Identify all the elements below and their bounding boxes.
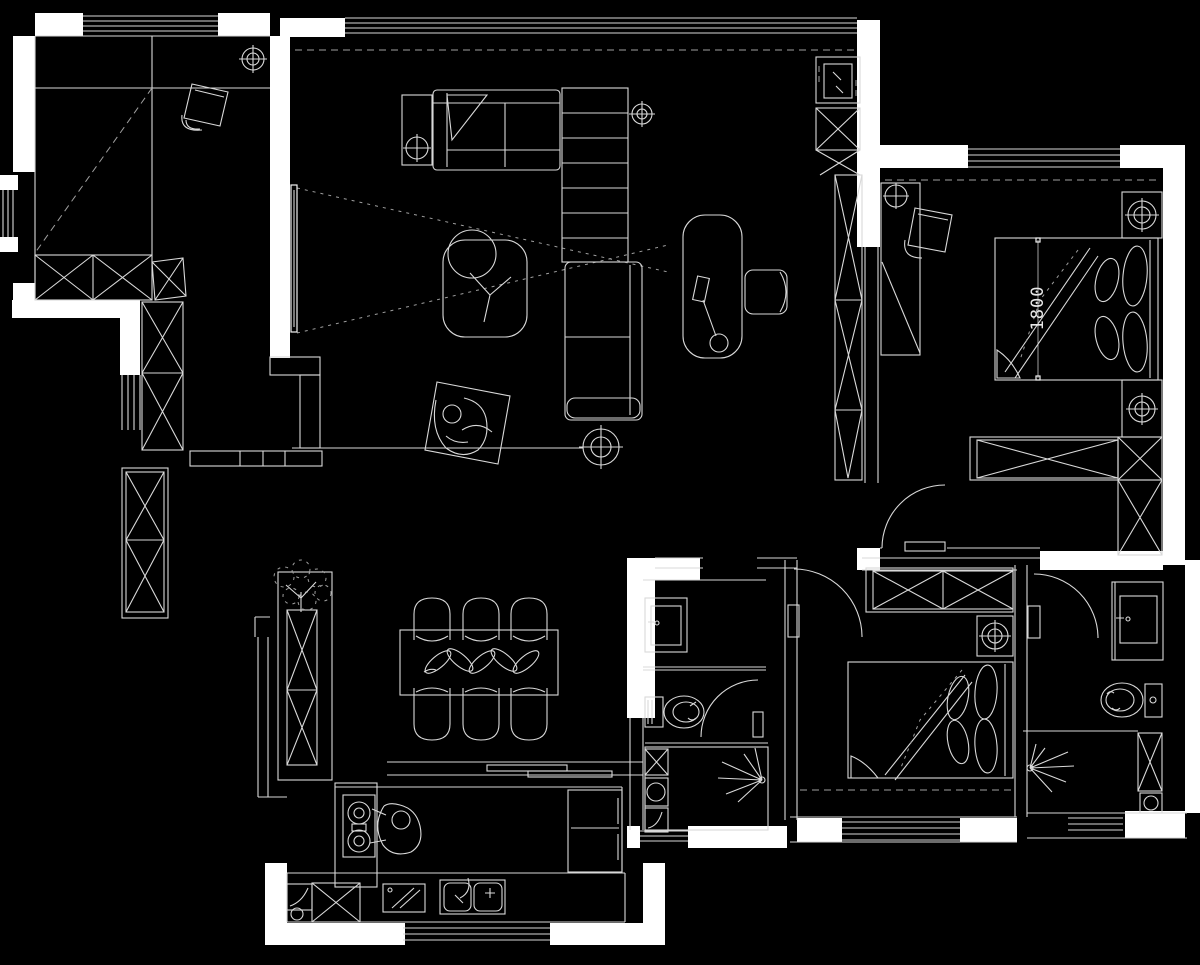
cutting-board bbox=[383, 884, 425, 912]
partition-walls bbox=[35, 36, 1187, 842]
dining-chairs-top bbox=[414, 598, 547, 641]
bathroom-storage-column bbox=[645, 749, 668, 832]
ensuite-toilet bbox=[1101, 683, 1162, 717]
bedroom2-furniture bbox=[848, 616, 1013, 780]
window-ensuite-bottom bbox=[1068, 818, 1123, 830]
kitchen-left-counter bbox=[335, 783, 377, 887]
dining-chairs-bottom bbox=[414, 688, 547, 740]
tv-sightline-upper bbox=[297, 188, 668, 272]
window-bedroom2-bottom bbox=[842, 822, 960, 840]
kitchen-base-cabinet-x bbox=[312, 883, 360, 922]
window-study-top bbox=[83, 16, 218, 31]
ensuite-bathroom bbox=[1027, 582, 1163, 792]
tv-sightline-lower bbox=[297, 245, 668, 333]
floor-plan-screenshot: 1800 bbox=[0, 0, 1200, 965]
hall-cabinet-upper bbox=[142, 302, 183, 450]
doors bbox=[487, 485, 1098, 777]
window-hall-left bbox=[122, 375, 140, 430]
hall-cabinet-lower bbox=[122, 468, 168, 618]
corner-lamp bbox=[629, 101, 655, 127]
window-study-left bbox=[3, 190, 13, 237]
window-living-top bbox=[345, 18, 857, 33]
master-nightstand-bottom bbox=[1122, 380, 1162, 437]
master-wardrobe bbox=[970, 437, 1162, 555]
walls-white bbox=[0, 13, 1200, 945]
dining-tall-cabinet bbox=[278, 572, 332, 780]
gas-stove bbox=[343, 795, 375, 857]
master-bed: 1800 bbox=[995, 238, 1158, 380]
master-nightstand-top bbox=[1122, 192, 1162, 238]
master-desk bbox=[881, 183, 920, 355]
bedroom2-nightstand bbox=[977, 616, 1013, 656]
bathroom bbox=[645, 598, 765, 802]
master-bedroom-furniture: 1800 bbox=[881, 183, 1162, 437]
window-kitchen-bottom bbox=[403, 928, 550, 940]
door-master-bedroom bbox=[882, 485, 945, 551]
person-figure-living bbox=[425, 382, 510, 464]
chaise-lounge bbox=[565, 262, 642, 420]
door-ensuite bbox=[1028, 574, 1098, 638]
living-room-furniture bbox=[291, 88, 787, 469]
study-cabinet-row bbox=[35, 255, 186, 300]
cabinets bbox=[35, 57, 1162, 922]
sofa-main bbox=[433, 90, 560, 170]
study-chair bbox=[182, 84, 228, 130]
table-centerpiece-leaves bbox=[422, 645, 542, 677]
floor-lamp bbox=[579, 425, 623, 469]
door-bedroom2 bbox=[788, 569, 862, 637]
person-figure-kitchen bbox=[370, 804, 421, 854]
door-bathroom-wc bbox=[701, 680, 763, 737]
refrigerator bbox=[568, 790, 622, 872]
bedroom2-bed bbox=[848, 662, 1013, 780]
sofa-side-table bbox=[402, 95, 432, 165]
desk-oval bbox=[683, 215, 742, 358]
entry-cabinet-appliance bbox=[816, 57, 860, 103]
desk-lamp bbox=[693, 276, 728, 352]
bed-width-label: 1800 bbox=[1028, 286, 1048, 331]
washbasin-vanity bbox=[645, 598, 687, 652]
window-master-top bbox=[968, 149, 1120, 167]
desk-chair bbox=[745, 270, 787, 314]
bedroom2-wardrobe bbox=[866, 568, 1013, 612]
entry-cabinet-x bbox=[816, 108, 860, 175]
lounge-chair bbox=[443, 230, 527, 337]
ensuite-shower-spray bbox=[1027, 744, 1074, 792]
study-ceiling-lamp bbox=[239, 45, 267, 73]
shower-spray bbox=[718, 748, 765, 802]
kitchen-corner-unit bbox=[287, 884, 312, 920]
plant-bonsai bbox=[274, 560, 331, 612]
ensuite-storage-column bbox=[1138, 733, 1162, 813]
double-sink bbox=[440, 878, 505, 914]
ensuite-washbasin bbox=[1112, 582, 1163, 660]
floor-plan-canvas: 1800 bbox=[0, 0, 1200, 965]
master-desk-chair bbox=[905, 208, 952, 258]
hall-console-shelf bbox=[190, 451, 322, 466]
tv-panel bbox=[291, 185, 297, 332]
sofa-cushion-column bbox=[562, 88, 628, 262]
